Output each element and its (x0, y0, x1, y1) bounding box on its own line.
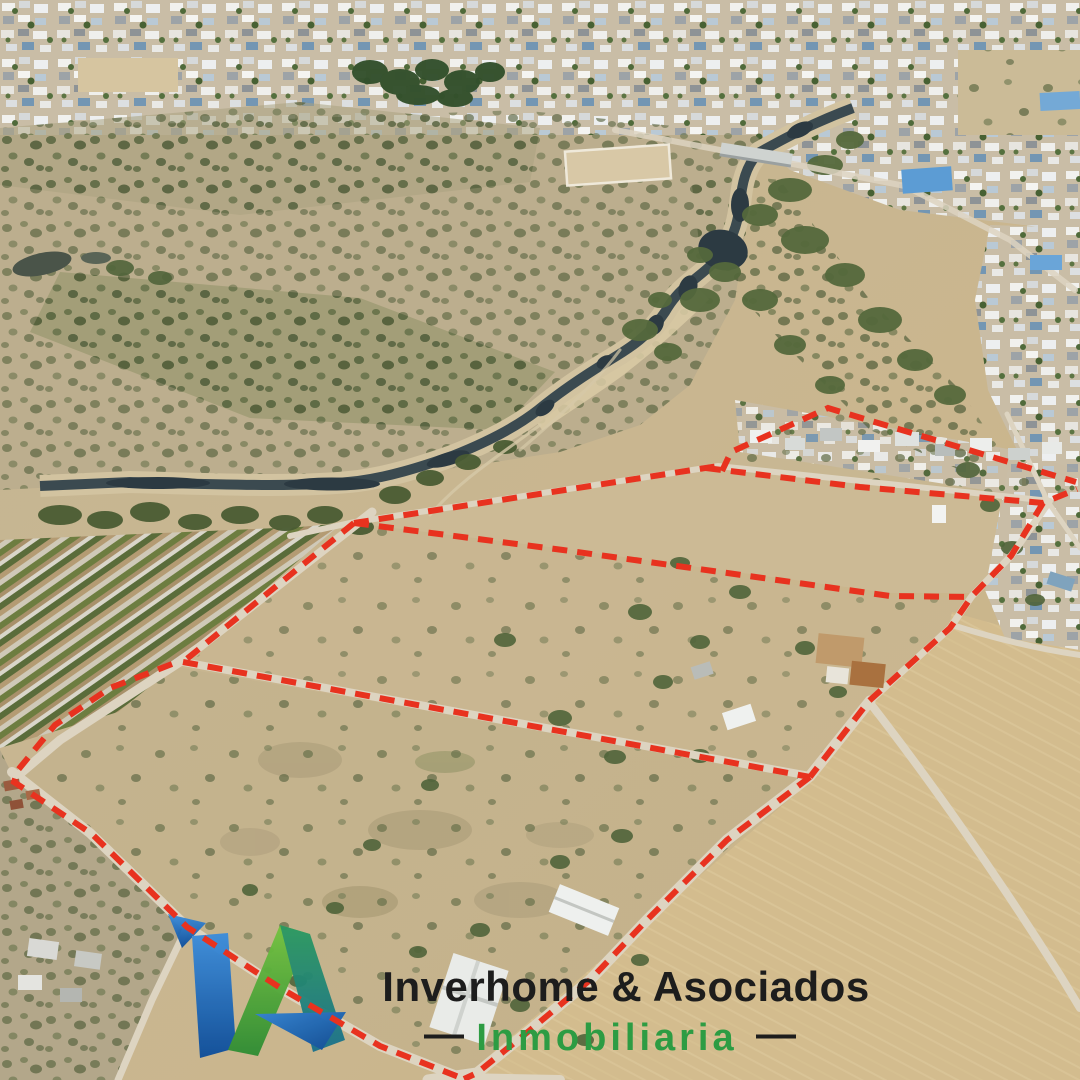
tagline-dash-right: — (756, 1012, 796, 1056)
city-tan-field-left (78, 58, 178, 92)
aerial-photo: Inverhome & Asociados — Inmobiliaria — (0, 0, 1080, 1080)
tagline: Inmobiliaria (476, 1017, 737, 1059)
blue-roof-small (1030, 255, 1062, 270)
sports-field (565, 144, 671, 185)
blue-roof-building (901, 166, 953, 193)
tagline-dash-left: — (424, 1012, 464, 1056)
brand-name: Inverhome & Asociados (382, 963, 869, 1010)
screenshot-root: Inverhome & Asociados — Inmobiliaria — (0, 0, 1080, 1080)
water-tower (932, 505, 946, 523)
blue-warehouse-top-right (1040, 91, 1080, 111)
